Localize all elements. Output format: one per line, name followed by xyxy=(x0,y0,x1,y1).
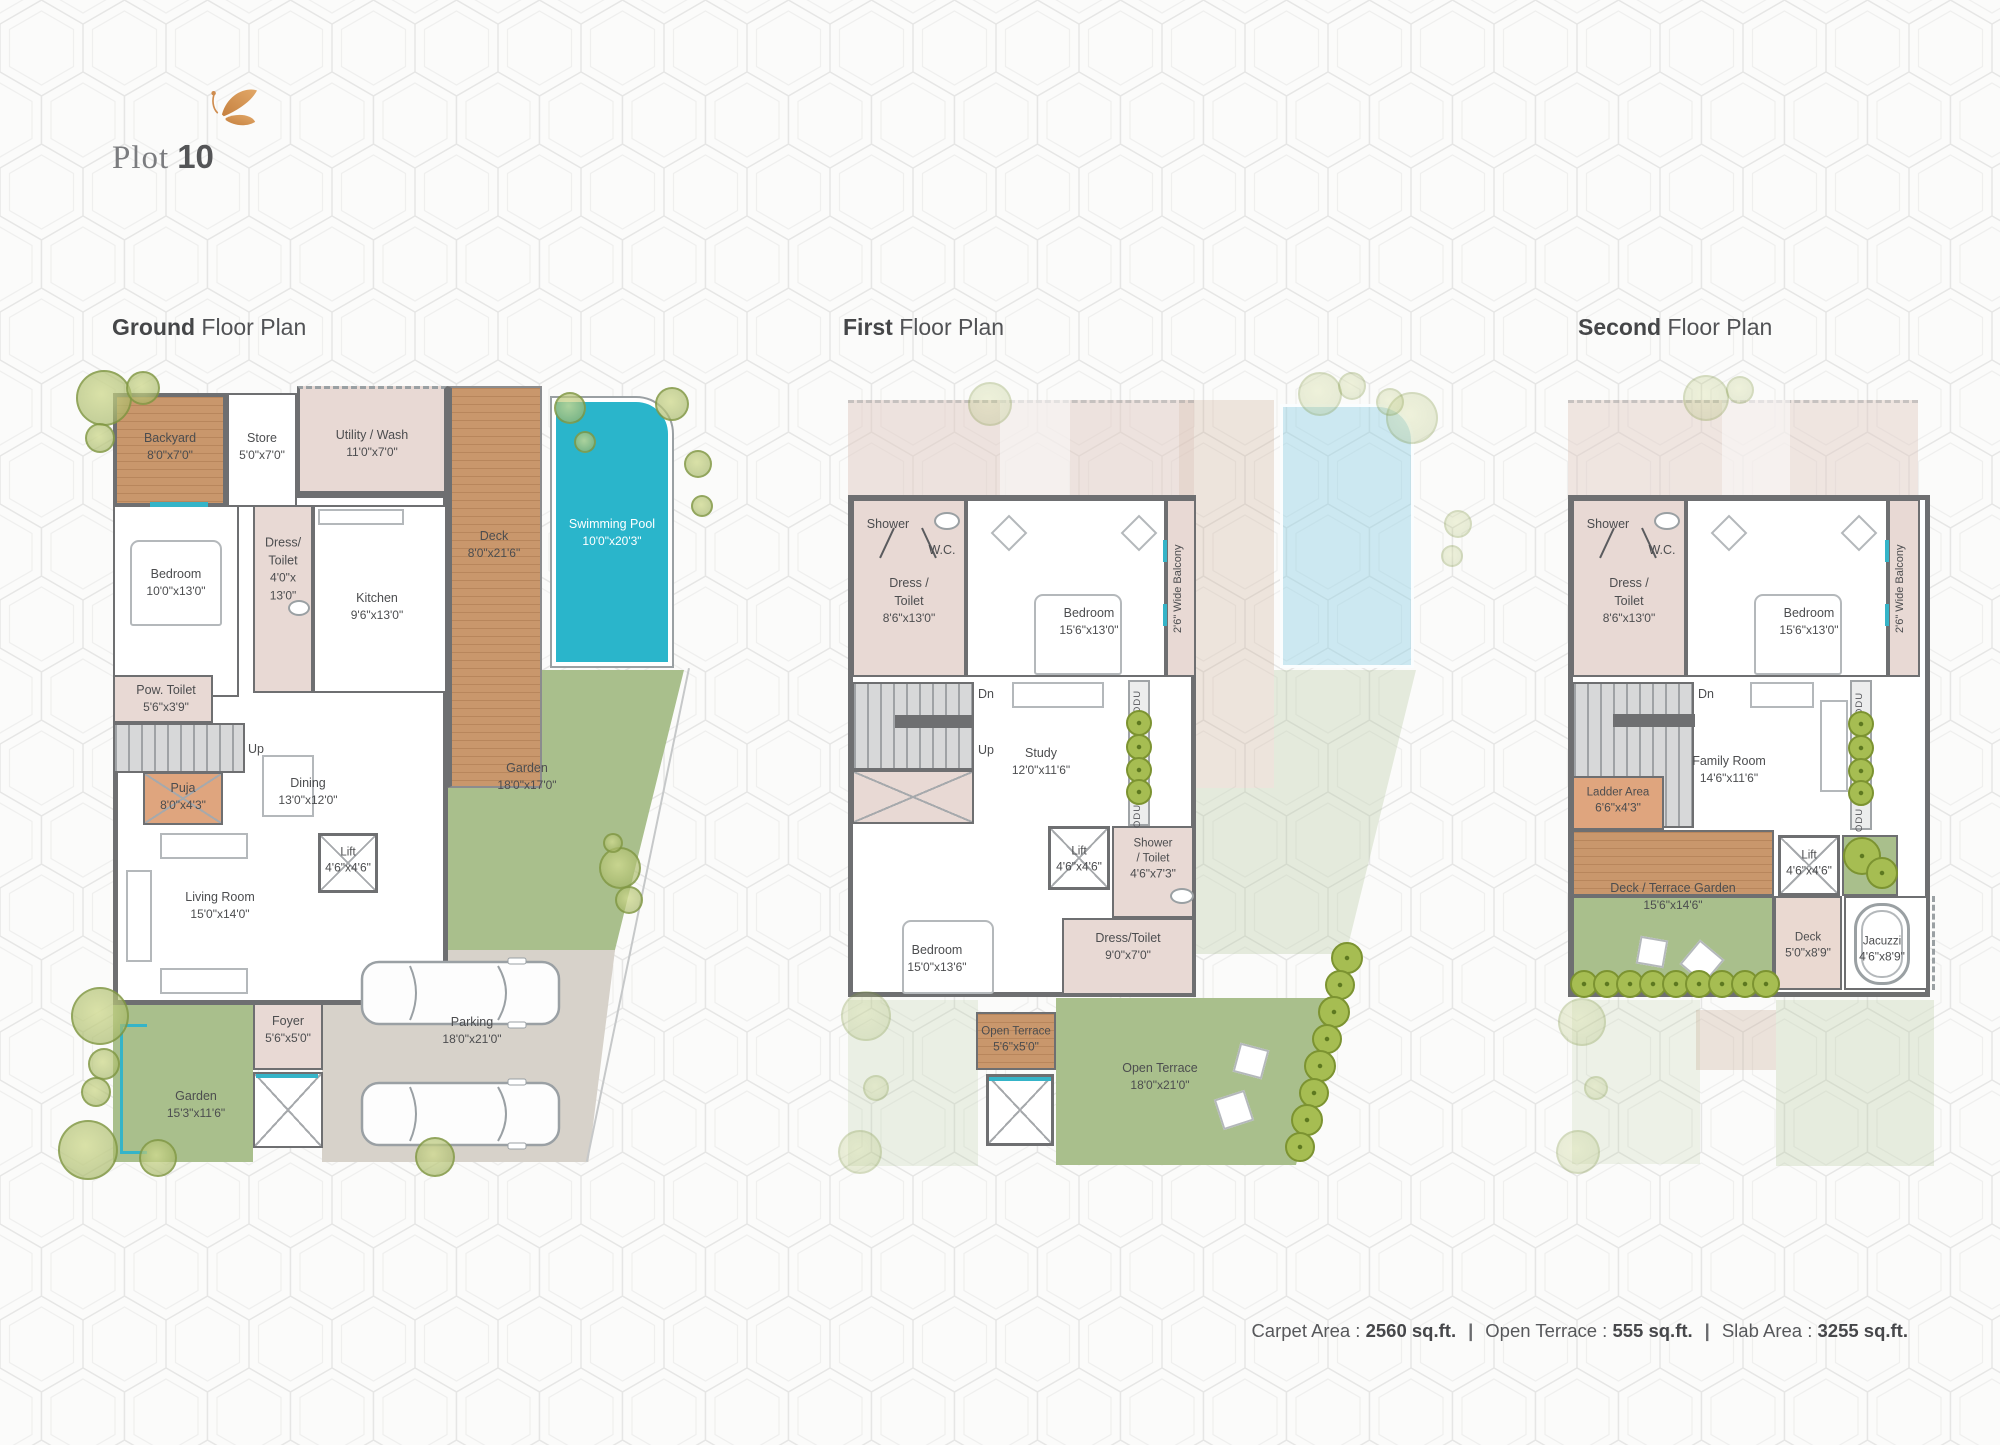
bush-icon xyxy=(1126,779,1152,805)
tree-icon xyxy=(599,847,641,889)
first-stair-landing xyxy=(852,770,974,824)
stair-rail xyxy=(895,715,973,728)
first-balcony-label: 2'6" Wide Balcony xyxy=(1172,518,1184,660)
slab-area-value: 3255 sq.ft. xyxy=(1818,1320,1909,1341)
tree-icon xyxy=(841,991,891,1041)
tree-icon xyxy=(1726,376,1754,404)
tree-icon xyxy=(968,382,1012,426)
carpet-area-label: Carpet Area : xyxy=(1251,1320,1360,1341)
ground-kitchen-label: Kitchen9'6"x13'0" xyxy=(351,589,403,625)
open-terrace-value: 555 sq.ft. xyxy=(1612,1320,1692,1341)
hedge-tree-icon xyxy=(1866,857,1898,889)
balcony-window xyxy=(1163,540,1167,562)
ground-entry-court xyxy=(253,1072,323,1148)
area-summary: Carpet Area : 2560 sq.ft.|Open Terrace :… xyxy=(900,1320,1908,1342)
ground-deck xyxy=(447,386,542,788)
first-ghost-pool xyxy=(1280,404,1414,668)
tree-icon xyxy=(76,370,132,426)
second-lift-label: Lift4'6"x4'6" xyxy=(1786,849,1832,880)
second-ghost-wood xyxy=(1696,1010,1776,1070)
balcony-hatch-edge xyxy=(1928,896,1935,990)
tree-icon xyxy=(1441,545,1463,567)
tree-icon xyxy=(1584,1076,1608,1100)
tree-icon xyxy=(1683,375,1729,421)
tree-icon xyxy=(615,886,643,914)
tree-icon xyxy=(684,450,712,478)
tree-icon xyxy=(81,1077,111,1107)
ground-foyer-label: Foyer5'6"x5'0" xyxy=(265,1012,311,1048)
ground-staircase xyxy=(113,723,245,773)
toilet-icon xyxy=(934,512,960,530)
tree-icon xyxy=(655,387,689,421)
sofa-icon xyxy=(1012,682,1104,708)
bush-icon xyxy=(1848,711,1874,737)
second-wc-label: W.C. xyxy=(1648,541,1675,559)
ground-floor-title: Ground Floor Plan xyxy=(112,314,306,341)
garden-water-feature xyxy=(120,1024,147,1154)
balcony-window xyxy=(1885,604,1889,626)
ground-utility-label: Utility / Wash11'0"x7'0" xyxy=(336,426,408,462)
first-shower-label: Shower xyxy=(867,515,909,533)
ground-dining-label: Dining13'0"x12'0" xyxy=(278,774,337,810)
sofa-icon xyxy=(126,870,152,962)
second-jacuzzi-label: Jacuzzi4'6"x8'9" xyxy=(1859,935,1905,966)
tree-icon xyxy=(574,431,596,453)
brand-logo-text: Plot10 xyxy=(112,138,214,177)
bedroom-window xyxy=(150,502,208,507)
sofa-icon xyxy=(1820,700,1848,792)
separator: | xyxy=(1456,1320,1485,1341)
tree-icon xyxy=(1298,372,1342,416)
bush-icon xyxy=(1848,780,1874,806)
toilet-icon xyxy=(1654,512,1680,530)
toilet-icon xyxy=(1170,888,1194,904)
ground-up-label: Up xyxy=(248,740,264,758)
second-ghost-stair-gap xyxy=(1722,400,1790,498)
ground-garden-right-label: Garden18'0"x17'0" xyxy=(497,759,556,795)
hedge-tree-icon xyxy=(1285,1132,1315,1162)
first-bedroom-label: Bedroom15'6"x13'0" xyxy=(1059,604,1118,640)
tree-icon xyxy=(1558,998,1606,1046)
terrace-court-edge xyxy=(989,1077,1051,1081)
first-terrace-small-label: Open Terrace5'6"x5'0" xyxy=(981,1025,1050,1056)
ground-store-label: Store5'0"x7'0" xyxy=(239,429,285,465)
tree-icon xyxy=(1556,1130,1600,1174)
tree-icon xyxy=(1376,388,1404,416)
tree-icon xyxy=(603,833,623,853)
hedge-tree-icon xyxy=(1752,970,1780,998)
hedge-tree-icon xyxy=(1304,1050,1336,1082)
carpet-area-value: 2560 sq.ft. xyxy=(1366,1320,1457,1341)
second-deck-terrace-label: Deck / Terrace Garden15'6"x14'6" xyxy=(1610,879,1736,915)
tree-icon xyxy=(1444,510,1472,538)
tree-icon xyxy=(139,1139,177,1177)
stair-rail xyxy=(1613,714,1695,727)
ground-parking-label: Parking18'0"x21'0" xyxy=(442,1013,501,1049)
ground-living-label: Living Room15'0"x14'0" xyxy=(185,888,254,924)
ground-pool-label: Swimming Pool10'0"x20'3" xyxy=(569,515,655,551)
first-wc-label: W.C. xyxy=(928,541,955,559)
terrace-furniture xyxy=(1636,936,1668,968)
tree-icon xyxy=(58,1120,118,1180)
ground-pow-toilet-label: Pow. Toilet5'6"x3'9" xyxy=(136,681,196,717)
balcony-window xyxy=(1163,604,1167,626)
balcony-window xyxy=(1885,540,1889,562)
first-up-label: Up xyxy=(978,741,994,759)
entry-court-window xyxy=(256,1074,318,1078)
tree-icon xyxy=(85,423,115,453)
first-lift-label: Lift4'6"x4'6" xyxy=(1056,845,1102,876)
first-bedroom2-label: Bedroom15'0"x13'6" xyxy=(907,941,966,977)
first-study-label: Study12'0"x11'6" xyxy=(1012,744,1070,780)
sofa-icon xyxy=(160,968,248,994)
sofa-icon xyxy=(1750,682,1814,708)
ground-backyard-label: Backyard8'0"x7'0" xyxy=(144,429,196,465)
open-terrace-label: Open Terrace : xyxy=(1485,1320,1607,1341)
tree-icon xyxy=(126,371,160,405)
second-bedroom-label: Bedroom15'6"x13'0" xyxy=(1779,604,1838,640)
ground-puja-label: Puja8'0"x4'3" xyxy=(160,779,206,815)
tree-icon xyxy=(88,1048,120,1080)
first-dn-label: Dn xyxy=(978,685,994,703)
sofa-icon xyxy=(160,833,248,859)
floor-plans-sheet: Plot10 Ground Floor Plan First Floor Pla… xyxy=(0,0,2000,1445)
bush-icon xyxy=(1126,710,1152,736)
separator: | xyxy=(1693,1320,1722,1341)
tree-icon xyxy=(1338,372,1366,400)
hedge-tree-icon xyxy=(1331,942,1363,974)
first-terrace-court xyxy=(986,1074,1054,1146)
first-ghost-stair-gap xyxy=(1000,400,1070,498)
first-dress-toilet-label: Dress /Toilet8'6"x13'0" xyxy=(883,574,935,628)
first-terrace-big-label: Open Terrace18'0"x21'0" xyxy=(1122,1059,1198,1095)
hedge-tree-icon xyxy=(1291,1104,1323,1136)
tree-icon xyxy=(691,495,713,517)
car-icon xyxy=(358,1078,563,1150)
ground-bedroom-label: Bedroom10'0"x13'0" xyxy=(146,565,205,601)
tree-icon xyxy=(415,1137,455,1177)
second-ladder-label: Ladder Area6'6"x4'3" xyxy=(1587,786,1650,817)
tree-icon xyxy=(554,392,586,424)
second-ghost-terrace xyxy=(1776,1000,1934,1166)
second-deck-label: Deck5'0"x8'9" xyxy=(1785,931,1831,962)
first-shower-toilet-label: Shower/ Toilet4'6"x7'3" xyxy=(1130,836,1176,881)
ground-dress-toilet-label: Dress/Toilet4'0"x13'0" xyxy=(265,533,301,604)
second-shower-label: Shower xyxy=(1587,515,1629,533)
kitchen-counter xyxy=(318,509,404,525)
brand-word: Plot xyxy=(112,140,169,176)
slab-area-label: Slab Area : xyxy=(1722,1320,1813,1341)
ground-deck-label: Deck8'0"x21'6" xyxy=(468,527,520,563)
butterfly-logo-icon xyxy=(205,84,261,132)
tree-icon xyxy=(838,1130,882,1174)
tree-icon xyxy=(71,987,129,1045)
ground-lift-label: Lift4'6"x4'6" xyxy=(325,846,371,877)
brand-number: 10 xyxy=(177,138,214,175)
tree-icon xyxy=(863,1075,889,1101)
first-dress-toilet2-label: Dress/Toilet9'0"x7'0" xyxy=(1095,929,1160,965)
second-floor-title: Second Floor Plan xyxy=(1578,314,1772,341)
second-balcony-label: 2'6" Wide Balcony xyxy=(1894,518,1906,660)
ground-garden-left-label: Garden15'3"x11'6" xyxy=(167,1087,225,1123)
hedge-tree-icon xyxy=(1318,996,1350,1028)
second-dress-toilet-label: Dress /Toilet8'6"x13'0" xyxy=(1603,574,1655,628)
second-dn-label: Dn xyxy=(1698,685,1714,703)
second-family-label: Family Room14'6"x11'6" xyxy=(1692,752,1766,788)
first-floor-title: First Floor Plan xyxy=(843,314,1004,341)
